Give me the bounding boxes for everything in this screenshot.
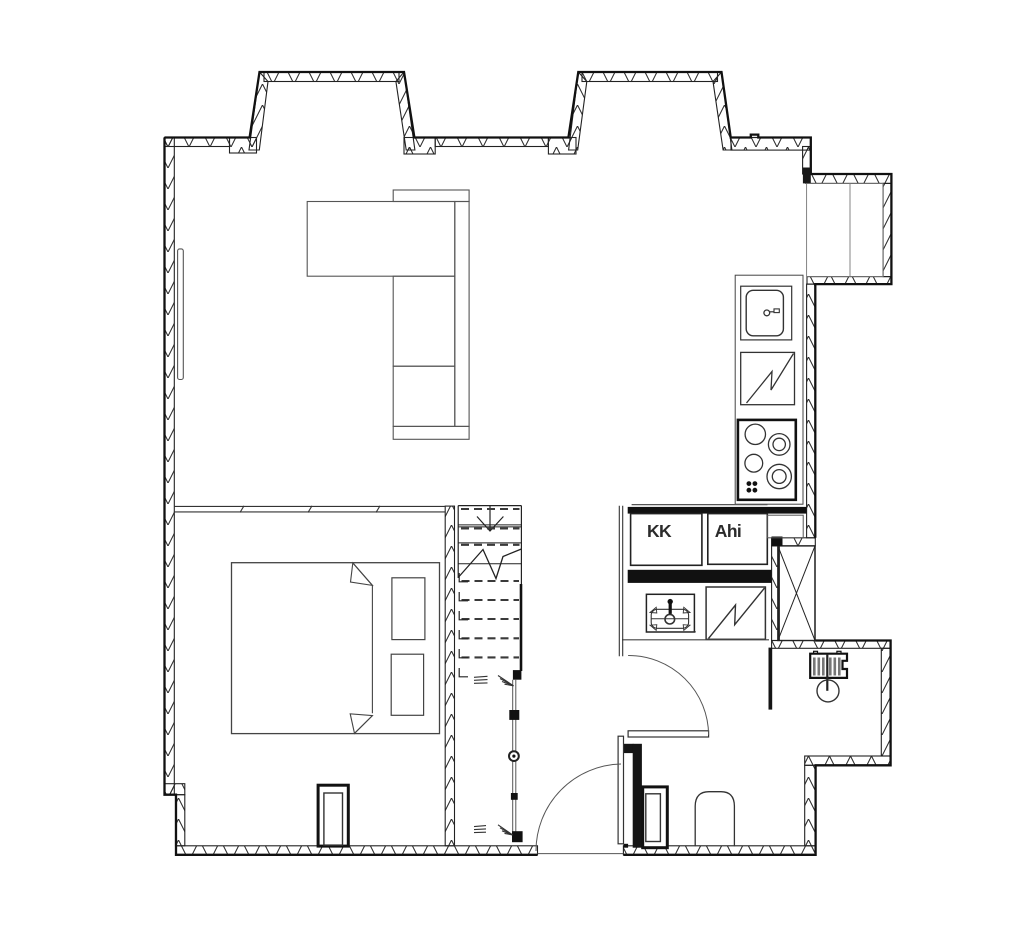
svg-text:Ahi: Ahi <box>715 521 741 541</box>
svg-text:KK: KK <box>647 521 672 541</box>
